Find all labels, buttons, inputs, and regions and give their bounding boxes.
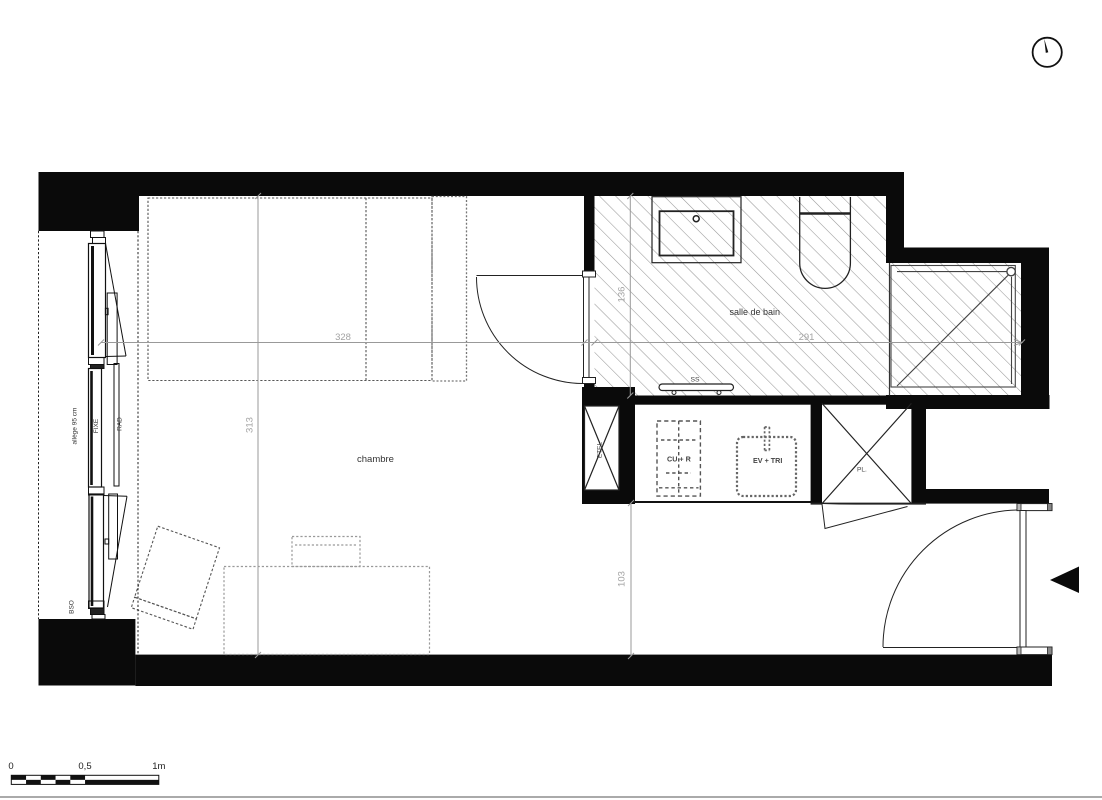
svg-text:BSO: BSO <box>69 600 76 614</box>
svg-text:chambre: chambre <box>357 454 394 465</box>
svg-text:0: 0 <box>8 761 13 772</box>
svg-text:0,5: 0,5 <box>78 761 91 772</box>
svg-text:salle de bain: salle de bain <box>730 307 781 317</box>
svg-text:1m: 1m <box>152 761 165 772</box>
svg-text:PL.: PL. <box>857 467 867 474</box>
svg-text:SS: SS <box>691 377 701 384</box>
svg-text:103: 103 <box>617 571 628 587</box>
svg-text:136: 136 <box>617 287 628 303</box>
svg-text:EV + TRI: EV + TRI <box>753 456 782 465</box>
svg-text:313: 313 <box>245 417 256 433</box>
svg-text:FIXE: FIXE <box>93 418 100 433</box>
svg-text:CU + R: CU + R <box>667 455 692 464</box>
svg-text:291: 291 <box>799 332 815 343</box>
svg-text:allège 95 cm: allège 95 cm <box>72 408 79 445</box>
svg-text:RAD: RAD <box>117 417 124 431</box>
svg-text:328: 328 <box>335 332 351 343</box>
svg-text:ETEL: ETEL <box>597 441 604 458</box>
